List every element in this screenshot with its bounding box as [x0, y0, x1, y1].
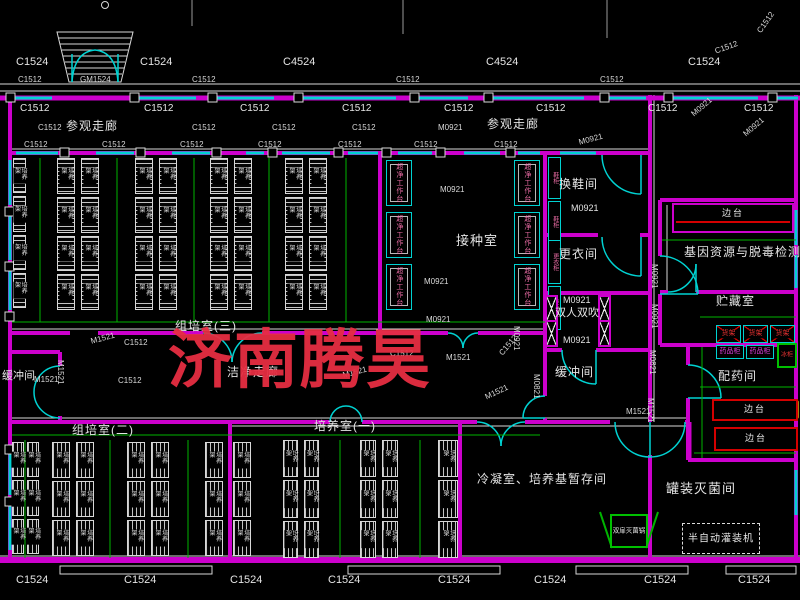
room-label-tissue-culture-2: 组培室(二) [72, 424, 134, 436]
culture-rack-cell [135, 274, 153, 310]
room-label-canning: 罐装灭菌间 [666, 482, 736, 495]
watermark-text: 济南腾昊 [168, 328, 432, 392]
door-code-label: M0921 [650, 304, 658, 328]
door-code-label: M0821 [532, 374, 540, 398]
culture-rack-cell [382, 521, 398, 558]
culture-rack-cell [13, 235, 26, 270]
room-label-gene-detection: 基因资源与脱毒检测室 [684, 246, 800, 258]
window-code-label: C1512 [144, 104, 173, 114]
window-code-label: C1512 [272, 124, 296, 132]
door-code-label: M0921 [440, 186, 464, 194]
culture-shelf-group [12, 442, 24, 554]
culture-rack-cell [285, 236, 303, 272]
door-code-label: M0921 [563, 336, 591, 345]
clean-bench [514, 212, 540, 258]
door-code-label: M0921 [438, 124, 462, 132]
room-label-air-shower: 双人双吹 [555, 308, 599, 319]
side-bench [712, 399, 798, 421]
room-label-condensation-store: 冷凝室、培养基暂存间 [477, 473, 607, 485]
air-shower-unit [598, 295, 611, 347]
storage-shelf [770, 325, 795, 343]
window-code-label: C1524 [534, 575, 566, 586]
culture-shelf-group [233, 442, 251, 556]
window-code-label: C1524 [644, 575, 676, 586]
side-bench [714, 427, 798, 451]
filling-machine [682, 523, 760, 554]
culture-rack-cell [438, 440, 458, 477]
culture-rack-cell [135, 236, 153, 272]
culture-rack-cell [382, 480, 398, 517]
window-code-label: C1524 [230, 575, 262, 586]
culture-rack-cell [382, 440, 398, 477]
culture-rack-cell [360, 440, 376, 477]
window-code-label: C1512 [258, 141, 282, 149]
window-code-label: C1512 [338, 141, 362, 149]
culture-rack-cell [12, 442, 24, 477]
door-code-label: M1521 [56, 360, 64, 384]
medicine-cabinet [716, 345, 744, 359]
double-door-sterilizer [610, 514, 648, 548]
culture-rack-cell [52, 442, 70, 478]
window-code-label: C1512 [18, 76, 42, 84]
door-code-label: M0821 [648, 350, 656, 374]
culture-shelf-group [210, 158, 252, 310]
culture-rack-cell [135, 158, 153, 194]
cad-floor-plan: C1524 C1524 C4524 C4524 C1524 C1512 C151… [0, 0, 800, 600]
shoe-cabinet [548, 201, 561, 243]
culture-rack-cell [309, 158, 327, 194]
culture-rack-cell [234, 197, 252, 233]
culture-rack-cell [210, 197, 228, 233]
culture-rack-cell [210, 274, 228, 310]
air-shower-unit [545, 295, 558, 347]
culture-rack-cell [81, 197, 99, 233]
room-label-inoculation: 接种室 [456, 234, 498, 247]
door-code-label: M0921 [650, 264, 658, 288]
culture-rack-cell [52, 481, 70, 517]
culture-rack-cell [76, 442, 94, 478]
culture-rack-cell [151, 481, 169, 517]
room-label-dispensing: 配药间 [718, 370, 757, 382]
culture-rack-cell [233, 520, 251, 556]
culture-rack-cell [81, 236, 99, 272]
culture-rack-cell [57, 197, 75, 233]
culture-rack-cell [12, 519, 24, 554]
culture-rack-cell [360, 480, 376, 517]
window-code-label: C1512 [124, 339, 148, 347]
room-label-storage: 贮藏室 [716, 295, 755, 307]
culture-rack-cell [210, 236, 228, 272]
window-code-label: C1524 [738, 575, 770, 586]
culture-rack-cell [205, 520, 223, 556]
culture-shelf-group [283, 440, 319, 558]
side-bench [672, 203, 794, 233]
door-code-label: M0921 [424, 278, 448, 286]
window-code-label: C1524 [16, 57, 48, 68]
culture-rack-cell [234, 274, 252, 310]
window-code-label: C1512 [342, 104, 371, 114]
room-label-buffer: 缓冲间 [2, 371, 35, 382]
window-code-label: C1512 [240, 104, 269, 114]
culture-rack-cell [304, 480, 319, 517]
culture-rack-cell [27, 519, 39, 554]
window-code-label: C1512 [444, 104, 473, 114]
window-code-label: C1512 [118, 377, 142, 385]
fridge [777, 343, 797, 368]
culture-rack-cell [205, 442, 223, 478]
culture-shelf-group [205, 442, 223, 556]
culture-rack-cell [57, 158, 75, 194]
door-code-label: M1521 [446, 354, 470, 362]
door-code-label: GM1524 [80, 76, 111, 84]
culture-rack-cell [76, 481, 94, 517]
window-code-label: C4524 [486, 57, 518, 68]
culture-rack-cell [309, 197, 327, 233]
storage-shelf [743, 325, 768, 343]
culture-shelf-group [27, 442, 39, 554]
culture-rack-cell [13, 273, 26, 308]
room-label-dressing: 更衣间 [559, 248, 598, 260]
door-code-label: M1521 [34, 376, 58, 384]
culture-rack-cell [127, 442, 145, 478]
room-label-visit-corridor: 参观走廊 [487, 118, 539, 130]
culture-rack-cell [57, 236, 75, 272]
window-code-label: C1524 [16, 575, 48, 586]
culture-rack-cell [234, 158, 252, 194]
door-code-label: M0921 [571, 204, 599, 213]
window-code-label: C1512 [20, 104, 49, 114]
storage-shelf [716, 325, 741, 343]
culture-rack-cell [159, 274, 177, 310]
window-code-label: C1512 [352, 124, 376, 132]
culture-rack-cell [285, 274, 303, 310]
culture-rack-cell [81, 158, 99, 194]
door-code-label: M1521 [626, 408, 650, 416]
window-code-label: C1512 [600, 76, 624, 84]
culture-shelf-group [285, 158, 327, 310]
culture-rack-cell [304, 521, 319, 558]
room-label-culture-1: 培养室(一) [314, 420, 376, 432]
window-code-label: C1512 [414, 141, 438, 149]
culture-rack-cell [76, 520, 94, 556]
culture-rack-cell [27, 480, 39, 515]
window-code-label: C1512 [396, 76, 420, 84]
culture-shelf-group [57, 158, 99, 310]
culture-rack-cell [309, 236, 327, 272]
window-code-label: C1512 [536, 104, 565, 114]
door-code-label: M0921 [426, 316, 450, 324]
culture-rack-cell [52, 520, 70, 556]
culture-rack-cell [283, 480, 298, 517]
medicine-cabinet [746, 345, 774, 359]
room-label-buffer: 缓冲间 [555, 366, 594, 378]
culture-rack-cell [210, 158, 228, 194]
clean-bench [386, 212, 412, 258]
window-code-label: C1512 [648, 104, 677, 114]
clean-bench [386, 264, 412, 310]
window-code-label: C1512 [494, 141, 518, 149]
culture-shelf-group [438, 440, 458, 558]
window-code-label: C1524 [140, 57, 172, 68]
culture-shelf-group [52, 442, 94, 556]
window-code-label: C1512 [180, 141, 204, 149]
culture-rack-cell [438, 480, 458, 517]
door-code-label: M0921 [563, 296, 591, 305]
window-code-label: C1524 [124, 575, 156, 586]
culture-rack-cell [304, 440, 319, 477]
culture-rack-cell [151, 520, 169, 556]
culture-shelf-group [135, 158, 177, 310]
culture-rack-cell [27, 442, 39, 477]
clean-bench [386, 160, 412, 206]
culture-rack-cell [234, 236, 252, 272]
window-code-label: C4524 [283, 57, 315, 68]
room-label-shoe-change: 换鞋间 [559, 178, 598, 190]
window-code-label: C1512 [192, 124, 216, 132]
culture-rack-cell [57, 274, 75, 310]
window-code-label: C1512 [38, 124, 62, 132]
culture-rack-cell [159, 236, 177, 272]
culture-rack-cell [233, 481, 251, 517]
window-code-label: C1524 [328, 575, 360, 586]
window-code-label: C1524 [688, 57, 720, 68]
culture-rack-cell [12, 480, 24, 515]
culture-rack-cell [13, 158, 26, 193]
culture-rack-cell [135, 197, 153, 233]
culture-rack-cell [151, 442, 169, 478]
culture-shelf-group [13, 158, 26, 308]
culture-rack-cell [233, 442, 251, 478]
culture-rack-cell [13, 196, 26, 231]
culture-rack-cell [360, 521, 376, 558]
window-code-label: C1512 [102, 141, 126, 149]
clean-bench [514, 264, 540, 310]
window-code-label: C1512 [24, 141, 48, 149]
culture-rack-cell [205, 481, 223, 517]
culture-rack-cell [285, 158, 303, 194]
culture-rack-cell [81, 274, 99, 310]
culture-rack-cell [127, 481, 145, 517]
culture-shelf-group [127, 442, 169, 556]
clean-bench [514, 160, 540, 206]
culture-shelf-group [360, 440, 398, 558]
window-code-label: C1512 [744, 104, 773, 114]
window-code-label: C1524 [438, 575, 470, 586]
culture-rack-cell [438, 521, 458, 558]
culture-rack-cell [283, 440, 298, 477]
culture-rack-cell [159, 197, 177, 233]
culture-rack-cell [283, 521, 298, 558]
culture-rack-cell [127, 520, 145, 556]
culture-rack-cell [159, 158, 177, 194]
room-label-visit-corridor: 参观走廊 [66, 120, 118, 132]
window-code-label: C1512 [192, 76, 216, 84]
culture-rack-cell [285, 197, 303, 233]
culture-rack-cell [309, 274, 327, 310]
